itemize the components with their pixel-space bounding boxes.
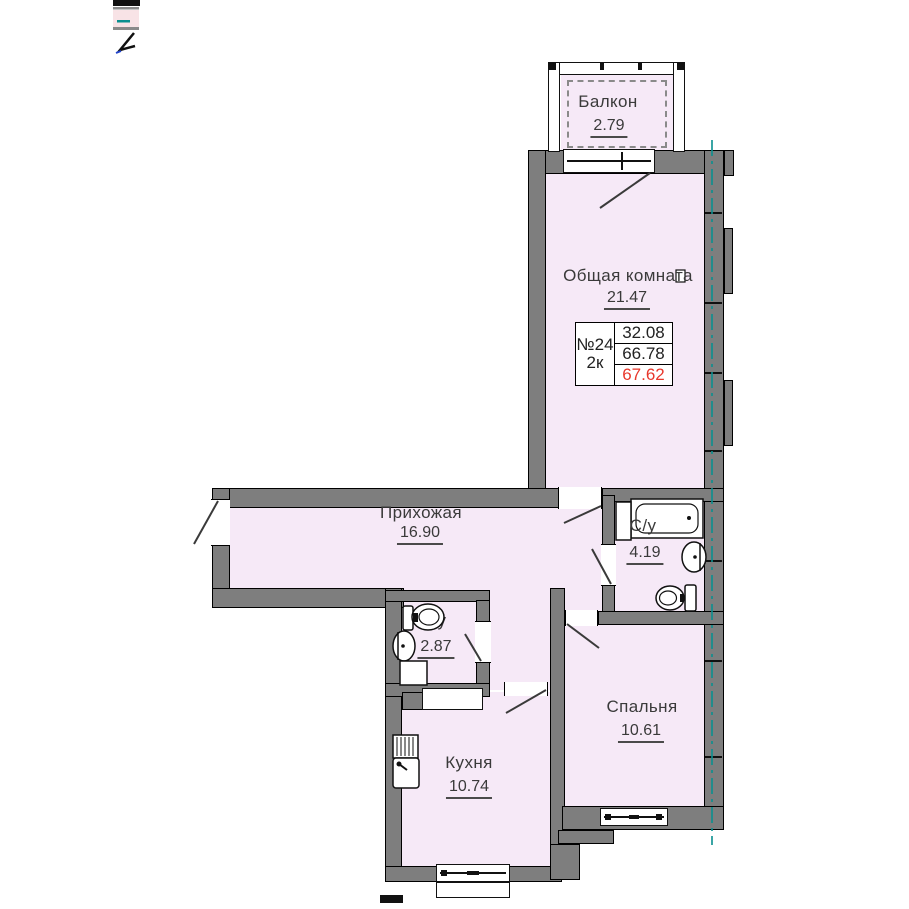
wall-block-left <box>385 588 402 880</box>
apartment-areas-column: 32.08 66.78 67.62 <box>614 323 672 385</box>
wall-joint-tick <box>705 372 722 374</box>
wall-top-right-ext <box>724 150 734 176</box>
apartment-number: №24 <box>576 336 613 354</box>
apartment-id-cell: №24 2к <box>576 323 614 385</box>
window-tick <box>441 870 447 876</box>
bedroom-door-opening <box>565 610 598 626</box>
wall-living-left <box>528 150 546 502</box>
wall-wc-top <box>385 590 490 602</box>
kitchen-door-opening <box>504 682 548 696</box>
bathroom-door-opening <box>601 544 616 586</box>
living-area: 21.47 <box>604 289 650 310</box>
hallway-label: Прихожая <box>380 503 462 523</box>
wall-duct-side <box>402 692 423 710</box>
vent-duct <box>422 688 483 710</box>
wall-pilaster-1 <box>724 228 733 294</box>
window-divider <box>621 152 623 170</box>
balcony-corner-post <box>677 63 684 70</box>
floor-plan: { "rooms": [ {"id": "balcony", "name": "… <box>0 0 909 909</box>
balcony-frame-tick <box>638 63 642 70</box>
wall-joint-tick <box>705 212 722 214</box>
bathroom-label: С/у <box>630 516 657 536</box>
balcony-frame-top <box>548 62 685 75</box>
window-tick <box>467 871 479 875</box>
wall-hatch <box>380 895 403 903</box>
wall-joint-tick <box>705 756 722 758</box>
wall-hallway-bottom <box>212 588 404 608</box>
room-corridor <box>489 588 550 690</box>
wc-door-opening <box>475 621 491 663</box>
balcony-frame-tick <box>600 63 604 70</box>
balcony-label: Балкон <box>578 92 637 112</box>
balcony-area: 2.79 <box>590 117 627 138</box>
wall-joint-tick <box>705 660 722 662</box>
window-tick <box>656 814 662 820</box>
kitchen-window <box>436 864 510 882</box>
balcony-corner-post <box>549 63 556 70</box>
wall-pilaster-2 <box>724 380 733 446</box>
bathroom-area: 4.19 <box>626 544 663 565</box>
balcony-frame-right <box>673 62 685 152</box>
balcony-door-window <box>563 149 655 173</box>
wall-joint-tick <box>705 560 722 562</box>
bedroom-window <box>600 808 668 826</box>
balcony-frame-left <box>548 62 560 152</box>
wall-bathroom-top <box>602 488 724 502</box>
wall-step-2 <box>550 844 580 880</box>
bedroom-label: Спальня <box>606 697 677 717</box>
entry-door-opening <box>211 499 230 546</box>
wall-step-1 <box>558 830 614 844</box>
hallway-area: 16.90 <box>397 524 443 545</box>
kitchen-window-sill <box>436 882 510 898</box>
kitchen-area: 10.74 <box>446 778 492 799</box>
wc-label: С/у <box>420 611 447 631</box>
living-area-value: 32.08 <box>615 323 672 344</box>
window-glass-line <box>567 160 651 162</box>
kitchen-label: Кухня <box>445 753 493 773</box>
living-label: Общая комната <box>563 266 693 286</box>
wall-bedroom-top <box>598 611 724 625</box>
wall-joint-tick <box>705 450 722 452</box>
apartment-rooms-count: 2к <box>587 354 604 372</box>
total-area-value: 67.62 <box>615 365 672 385</box>
wc-area: 2.87 <box>417 638 454 659</box>
window-tick <box>605 814 611 820</box>
plan-artifact <box>113 0 140 53</box>
bedroom-area: 10.61 <box>618 722 664 743</box>
area-value: 66.78 <box>615 344 672 365</box>
apartment-info-table: №24 2к 32.08 66.78 67.62 <box>575 322 673 386</box>
living-door-opening <box>558 487 602 509</box>
window-tick <box>629 815 639 819</box>
wall-joint-tick <box>705 302 722 304</box>
